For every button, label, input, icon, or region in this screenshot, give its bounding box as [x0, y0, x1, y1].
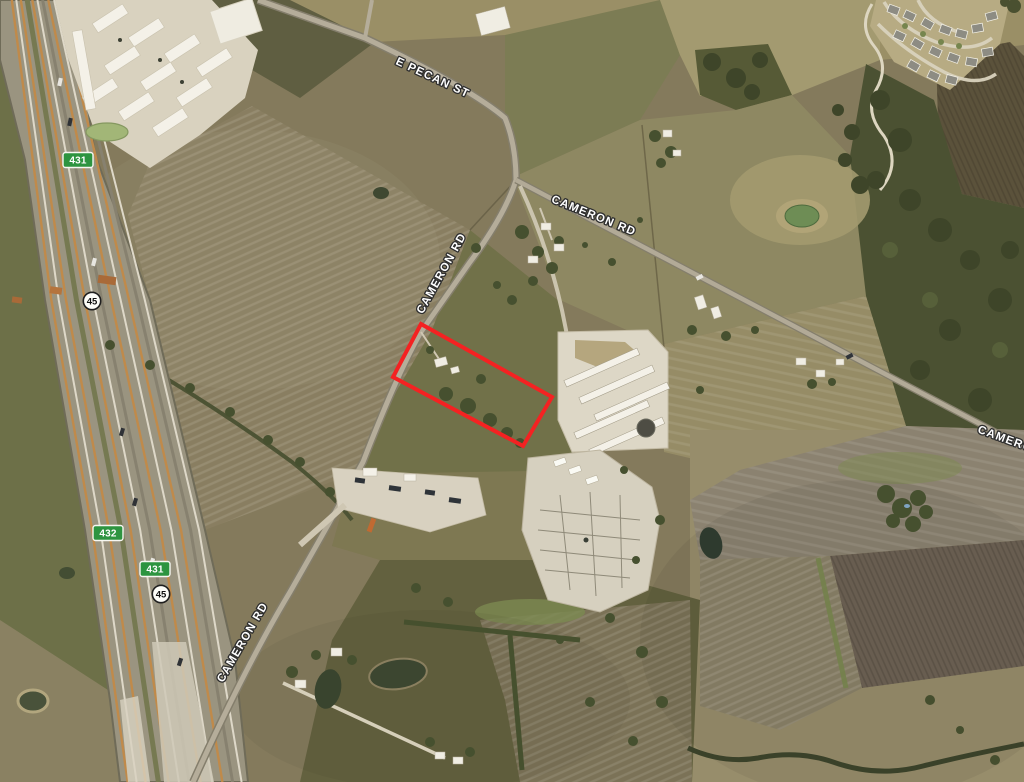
- swimming-pool: [904, 504, 910, 508]
- solar-facility: [558, 330, 670, 456]
- aerial-imagery: E PECAN ST CAMERON RD CAMERON RD CAMERON…: [0, 0, 1024, 782]
- shield-431-top: 431: [63, 153, 93, 168]
- shield-45-bottom: 45: [152, 585, 169, 602]
- svg-text:45: 45: [156, 589, 167, 600]
- svg-text:431: 431: [146, 565, 164, 576]
- retention-pond: [86, 123, 128, 141]
- satellite-map[interactable]: E PECAN ST CAMERON RD CAMERON RD CAMERON…: [0, 0, 1024, 782]
- shield-45-top: 45: [83, 292, 100, 309]
- shield-432: 432: [93, 526, 123, 541]
- shield-431-bottom: 431: [140, 562, 170, 577]
- svg-text:432: 432: [99, 529, 117, 540]
- storage-tank: [637, 419, 655, 437]
- svg-text:431: 431: [69, 156, 87, 167]
- svg-text:45: 45: [87, 296, 98, 307]
